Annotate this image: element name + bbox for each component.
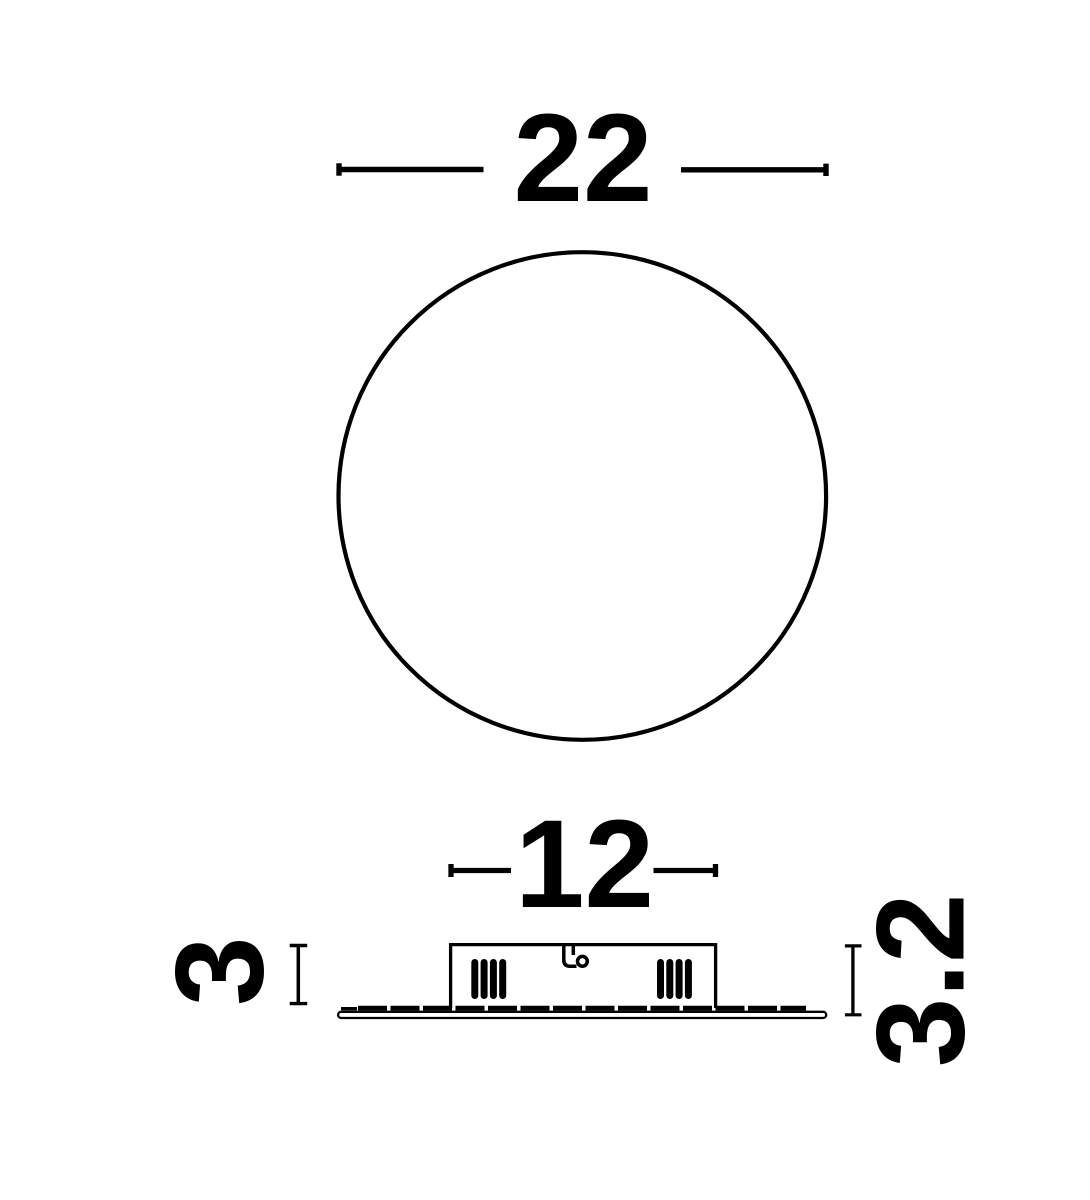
svg-text:3.2: 3.2: [851, 893, 990, 1067]
svg-text:22: 22: [513, 89, 652, 228]
svg-text:3: 3: [151, 936, 290, 1006]
svg-text:12: 12: [515, 795, 654, 934]
